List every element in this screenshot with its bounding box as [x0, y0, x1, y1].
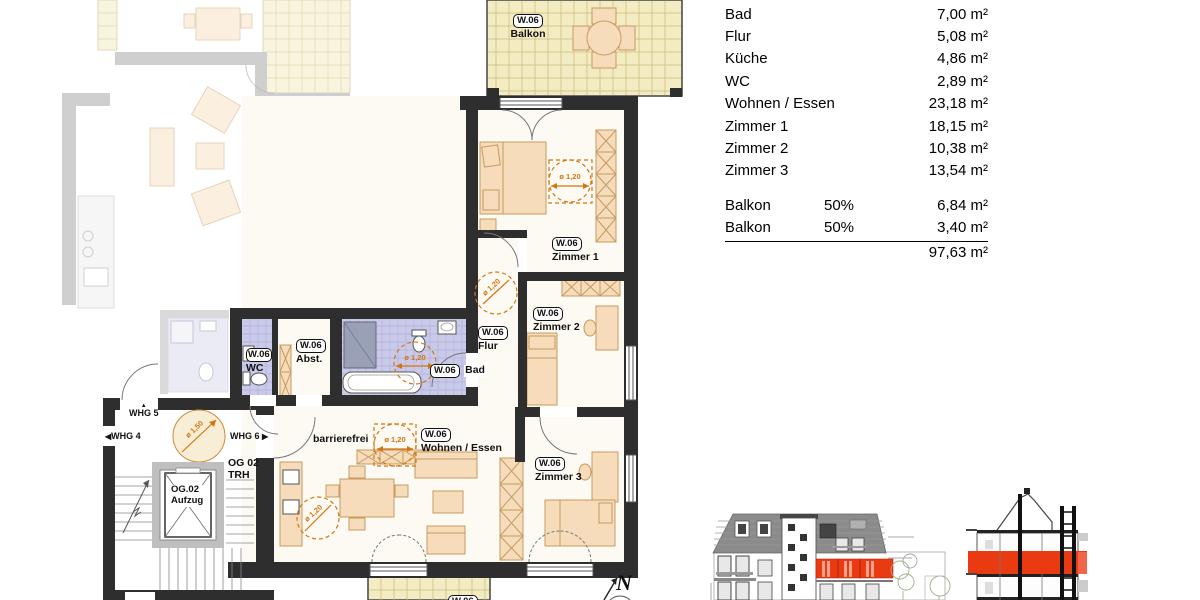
row-label: Balkon [725, 197, 771, 214]
row-value: 18,15 m² [929, 118, 988, 135]
label-balkon-bottom: W.06 [448, 591, 478, 600]
area-table: Bad 7,00 m² Flur 5,08 m² Küche 4,86 m² W… [725, 3, 988, 264]
building-section [966, 488, 1088, 600]
label-zimmer1: W.06 Zimmer 1 [552, 233, 599, 263]
table-row: Balkon 50% 3,40 m² [725, 217, 988, 239]
row-label: Zimmer 1 [725, 118, 788, 135]
floorplan-sheet: ø 1,20 ø 1,20 ø 1,20 ø 1,20 ø 1,20 ø 1,5… [0, 0, 1200, 600]
label-og02-trh: OG 02 TRH [228, 457, 259, 481]
table-row: Wohnen / Essen 23,18 m² [725, 93, 988, 115]
table-row: Küche 4,86 m² [725, 48, 988, 70]
svg-text:ø 1,20: ø 1,20 [384, 435, 405, 444]
label-wc: W.06 WC [246, 344, 272, 374]
table-row: Zimmer 1 18,15 m² [725, 115, 988, 137]
row-label: Flur [725, 28, 751, 45]
label-whg4: ◀WHG 4 [105, 431, 141, 441]
row-value: 4,86 m² [937, 50, 988, 67]
row-label: Wohnen / Essen [725, 95, 835, 112]
label-zimmer3: W.06 Zimmer 3 [535, 453, 582, 483]
table-total-row: 97,63 m² [725, 241, 988, 264]
row-value: 7,00 m² [937, 6, 988, 23]
label-zimmer2: W.06 Zimmer 2 [533, 303, 580, 333]
row-label: WC [725, 73, 750, 90]
row-value: 3,40 m² [937, 219, 988, 236]
section-highlight [968, 551, 1087, 574]
row-value: 2,89 m² [937, 73, 988, 90]
arrow-right-icon: ▶ [262, 432, 268, 441]
row-label: Zimmer 2 [725, 140, 788, 157]
north-label: N [616, 570, 632, 596]
label-flur: W.06 Flur [478, 322, 508, 352]
label-barrierefrei: barrierefrei [313, 433, 368, 445]
row-label: Balkon [725, 219, 771, 236]
row-value: 10,38 m² [929, 140, 988, 157]
label-aufzug: OG.02 Aufzug [170, 485, 204, 507]
row-label: Küche [725, 50, 768, 67]
label-wohnen: W.06 Wohnen / Essen [421, 424, 502, 454]
row-label: Zimmer 3 [725, 162, 788, 179]
row-factor: 50% [824, 197, 854, 214]
total-value: 97,63 m² [929, 244, 988, 261]
abst-shelf [280, 345, 291, 400]
dia-label: ø 1,20 [559, 172, 580, 181]
row-value: 5,08 m² [937, 28, 988, 45]
elevation-highlight [816, 559, 893, 578]
unit-badge: W.06 [513, 14, 543, 28]
table-row: Flur 5,08 m² [725, 25, 988, 47]
balcony-rows: Balkon 50% 6,84 m² Balkon 50% 3,40 m² [725, 194, 988, 239]
row-value: 13,54 m² [929, 162, 988, 179]
table-row: Bad 7,00 m² [725, 3, 988, 25]
label-whg6: WHG 6 ▶ [230, 431, 268, 441]
floor-plan-drawing: ø 1,20 ø 1,20 ø 1,20 ø 1,20 ø 1,20 ø 1,5… [0, 0, 1200, 600]
table-row: WC 2,89 m² [725, 70, 988, 92]
table-row: Zimmer 2 10,38 m² [725, 137, 988, 159]
table-row: Zimmer 3 13,54 m² [725, 160, 988, 182]
row-value: 23,18 m² [929, 95, 988, 112]
svg-text:ø 1,20: ø 1,20 [404, 353, 425, 362]
label-abst: W.06 Abst. [296, 335, 326, 365]
row-value: 6,84 m² [937, 197, 988, 214]
table-row: Balkon 50% 6,84 m² [725, 194, 988, 216]
label-whg5: ▲ WHG 5 [129, 404, 159, 418]
label-balkon-top: W.06 Balkon [502, 10, 554, 40]
label-bad: W.06 Bad [430, 360, 486, 378]
row-factor: 50% [824, 219, 854, 236]
row-label: Bad [725, 6, 752, 23]
building-elevation [711, 514, 950, 600]
